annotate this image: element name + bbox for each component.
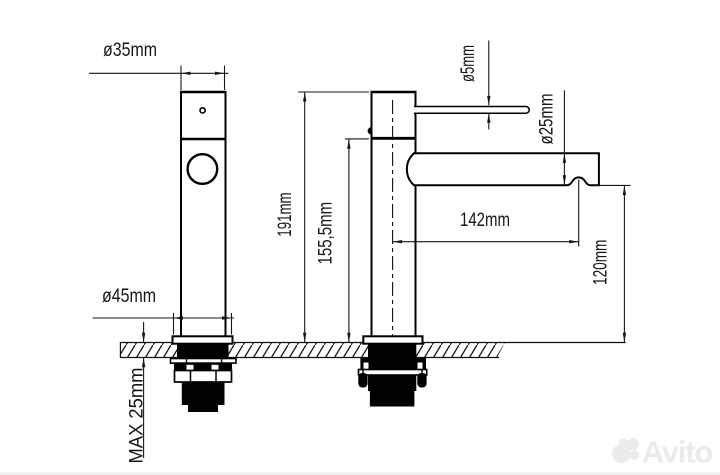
svg-text:ø45mm: ø45mm xyxy=(102,286,156,307)
svg-text:Avito: Avito xyxy=(642,435,714,470)
svg-text:MAX 25mm: MAX 25mm xyxy=(127,368,148,464)
svg-text:ø25mm: ø25mm xyxy=(537,94,558,145)
svg-text:142mm: 142mm xyxy=(460,210,510,231)
svg-text:155,5mm: 155,5mm xyxy=(316,202,337,265)
svg-text:ø5mm: ø5mm xyxy=(458,45,479,82)
svg-text:191mm: 191mm xyxy=(275,192,296,236)
svg-text:ø35mm: ø35mm xyxy=(103,40,157,61)
svg-text:120mm: 120mm xyxy=(591,240,612,285)
